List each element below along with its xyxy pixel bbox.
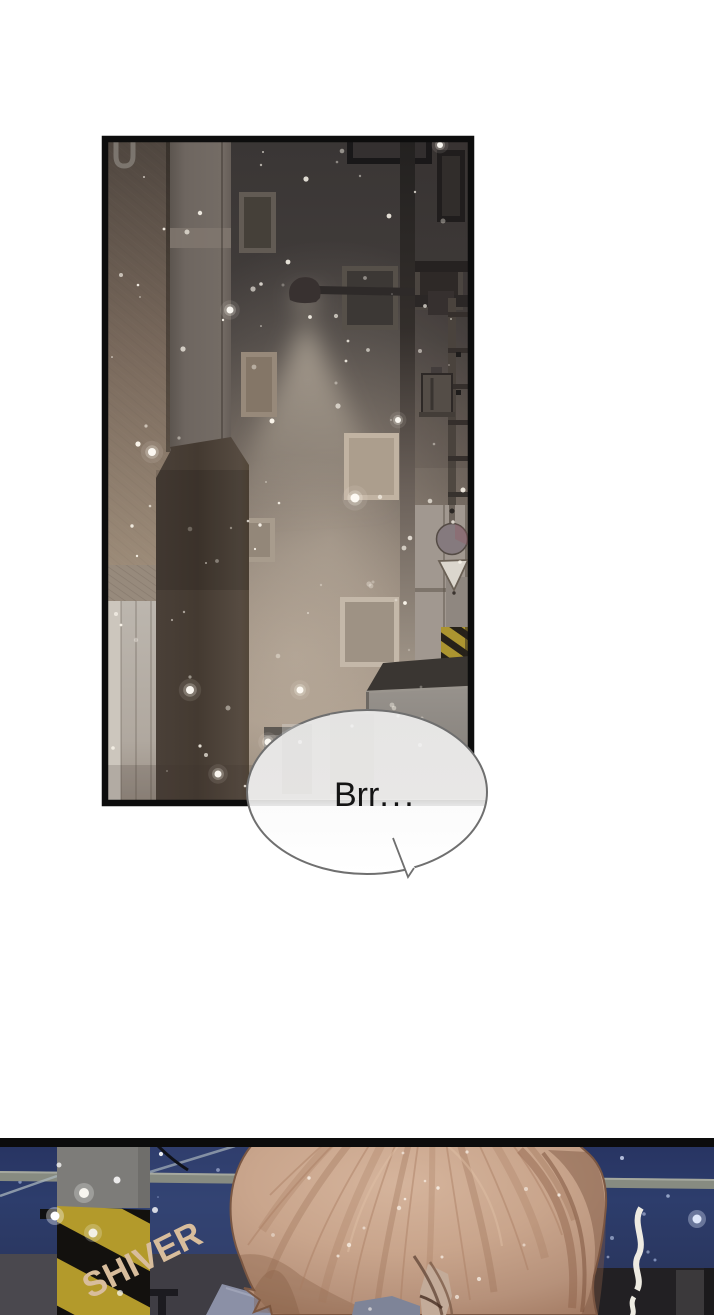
svg-text:Brr...: Brr... [334, 776, 417, 814]
